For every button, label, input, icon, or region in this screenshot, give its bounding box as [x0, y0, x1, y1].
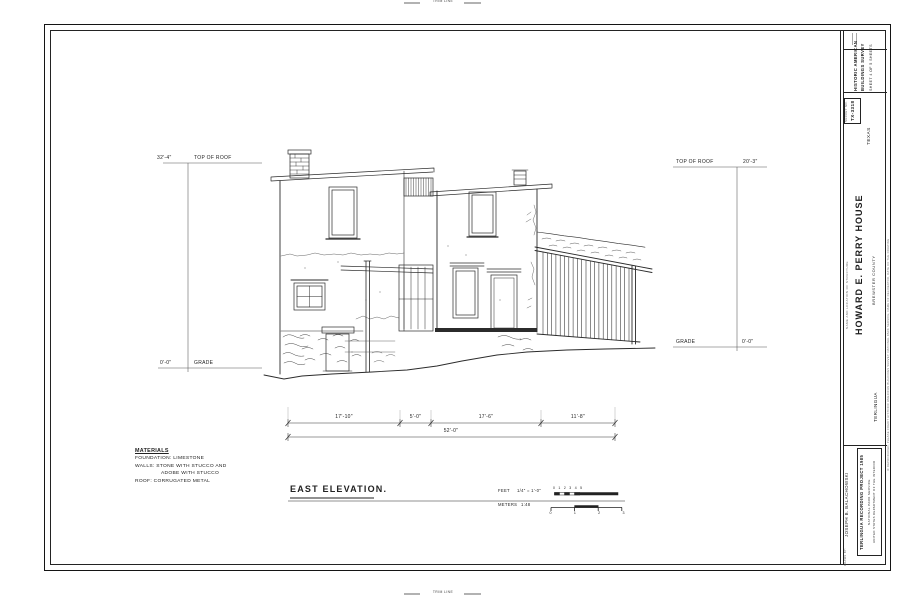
feet-scale-label: FEET — [498, 489, 510, 493]
scale-tick: 4 — [575, 487, 577, 490]
meters-scale-ratio: 1:48 — [521, 503, 530, 507]
drawing-title: EAST ELEVATION. — [290, 485, 387, 494]
scale-tick: 5 — [580, 487, 582, 490]
mark-left-bottom-value: 0'-0" — [160, 361, 171, 366]
elevation-drawing — [0, 0, 900, 599]
materials-note: MATERIALS FOUNDATION: LIMESTONE WALLS: S… — [135, 448, 227, 485]
dimension-label: 11'-8" — [553, 415, 603, 420]
mark-right-top-label: TOP OF ROOF — [676, 160, 714, 165]
mark-left-top-value: 32'-4" — [157, 156, 172, 161]
mark-right-top-value: 20'-3" — [743, 160, 758, 165]
dimension-label: 5'-0" — [391, 415, 441, 420]
materials-line: ROOF: CORRUGATED METAL — [135, 478, 227, 485]
mark-left-top-label: TOP OF ROOF — [194, 156, 232, 161]
scale-tick: 0 — [550, 512, 552, 516]
scale-tick: 2 — [564, 487, 566, 490]
scale-tick: 2 — [598, 512, 600, 516]
feet-scale-ratio: 1/4" = 1'-0" — [517, 489, 541, 493]
materials-line: ADOBE WITH STUCCO — [135, 470, 227, 477]
meters-scale-bar-numbers: 0 1 2 3 — [550, 512, 625, 516]
scale-tick: 3 — [622, 512, 624, 516]
materials-line: WALLS: STONE WITH STUCCO AND — [135, 463, 227, 470]
dimension-total-label: 52'-0" — [426, 429, 476, 434]
habs-sheet-scan: { "trim": { "top": "TRIM LINE", "bottom"… — [0, 0, 900, 599]
mark-right-bottom-label: GRADE — [676, 340, 695, 345]
scale-tick: 1 — [574, 512, 576, 516]
mark-right-bottom-value: 0'-0" — [742, 340, 753, 345]
mark-left-bottom-label: GRADE — [194, 361, 213, 366]
scale-tick: 1 — [558, 487, 560, 490]
scale-tick: 3 — [569, 487, 571, 490]
dimension-label: 17'-10" — [319, 415, 369, 420]
scale-tick: 0 — [553, 487, 555, 490]
feet-scale-bar-numbers: 0 1 2 3 4 5 — [553, 487, 582, 490]
meters-scale-label: METERS — [498, 503, 517, 507]
materials-line: FOUNDATION: LIMESTONE — [135, 455, 227, 462]
dimension-label: 17'-6" — [461, 415, 511, 420]
materials-heading: MATERIALS — [135, 448, 227, 455]
